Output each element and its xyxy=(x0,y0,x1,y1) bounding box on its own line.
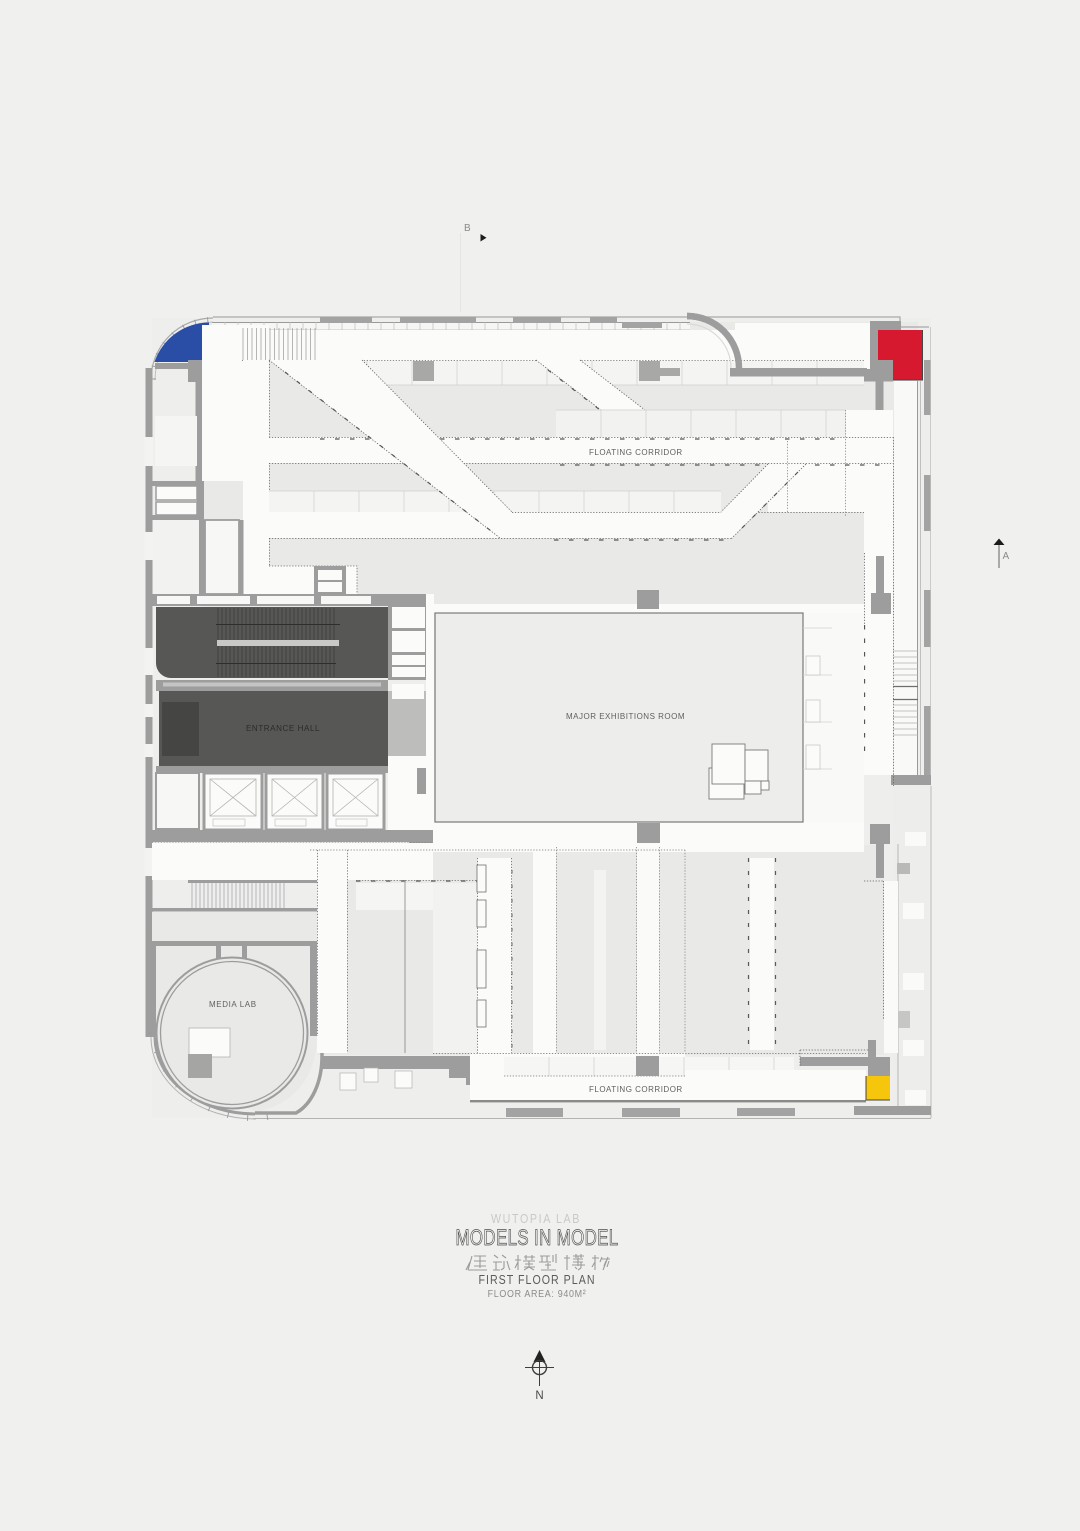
svg-text:N: N xyxy=(535,1390,543,1402)
svg-text:FIRST FLOOR PLAN: FIRST FLOOR PLAN xyxy=(478,1273,595,1287)
svg-text:A: A xyxy=(1003,551,1010,562)
svg-text:MODELS IN MODEL: MODELS IN MODEL xyxy=(455,1226,618,1251)
svg-text:FLOATING CORRIDOR: FLOATING CORRIDOR xyxy=(589,1085,683,1094)
svg-text:FLOOR AREA: 940M²: FLOOR AREA: 940M² xyxy=(488,1288,587,1300)
svg-text:WUTOPIA LAB: WUTOPIA LAB xyxy=(491,1211,581,1226)
svg-text:FLOATING CORRIDOR: FLOATING CORRIDOR xyxy=(589,448,683,457)
svg-text:MEDIA LAB: MEDIA LAB xyxy=(209,1000,257,1009)
svg-text:MAJOR EXHIBITIONS ROOM: MAJOR EXHIBITIONS ROOM xyxy=(566,712,685,721)
svg-text:ENTRANCE HALL: ENTRANCE HALL xyxy=(246,724,320,733)
svg-text:B: B xyxy=(464,223,471,234)
